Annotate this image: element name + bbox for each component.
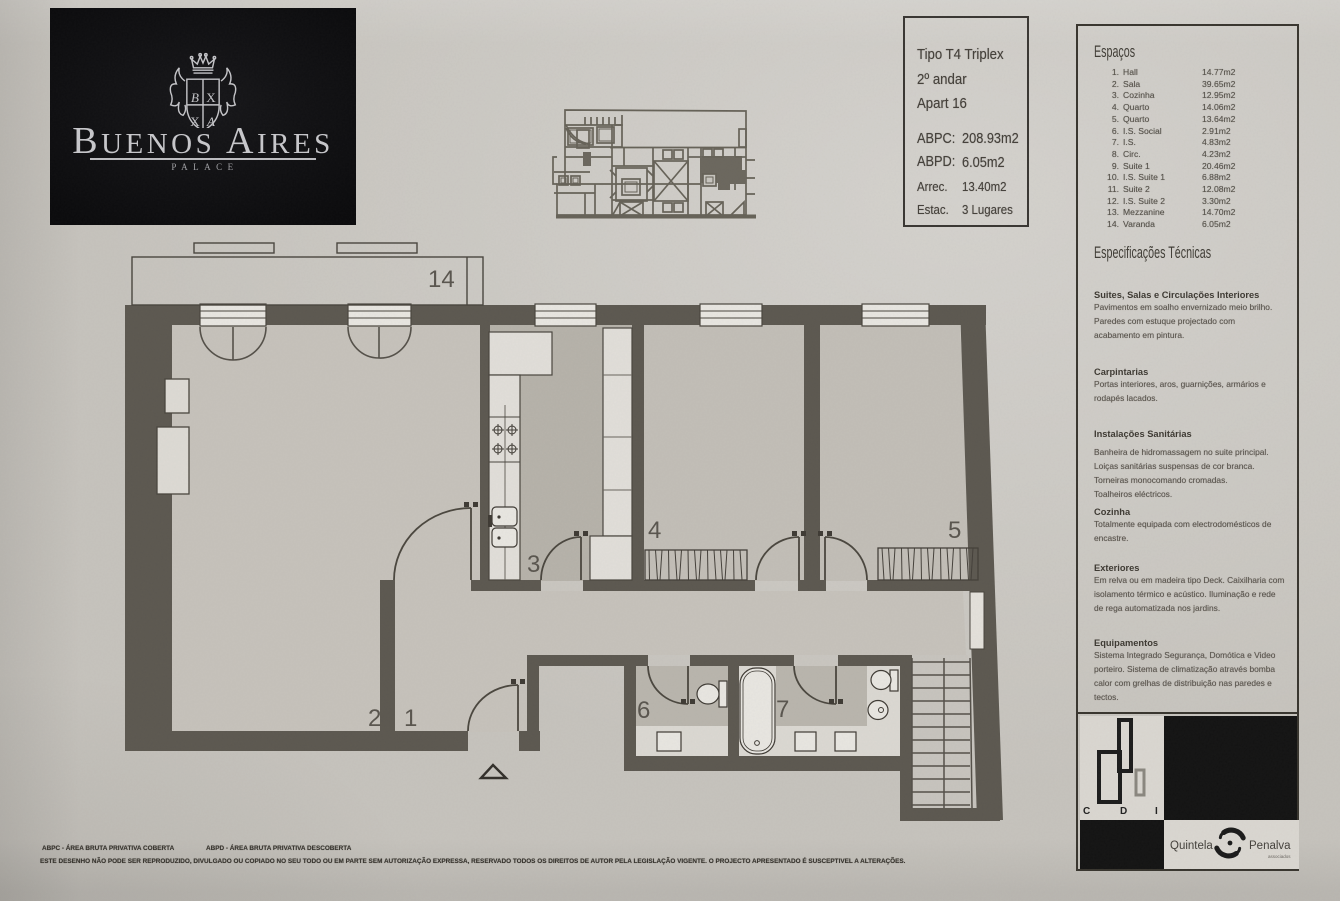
svg-text:7: 7	[776, 696, 789, 723]
svg-text:associados: associados	[1268, 854, 1291, 859]
svg-text:X: X	[206, 90, 216, 105]
svg-text:Quintela: Quintela	[1170, 840, 1213, 852]
svg-text:Penalva: Penalva	[1249, 840, 1291, 852]
svg-text:4: 4	[648, 517, 661, 544]
svg-text:6: 6	[637, 697, 650, 724]
svg-text:5: 5	[948, 517, 961, 544]
svg-text:A: A	[206, 114, 215, 128]
svg-text:X: X	[190, 114, 200, 128]
svg-text:D: D	[1120, 806, 1127, 817]
svg-text:14: 14	[428, 266, 455, 293]
svg-text:1: 1	[404, 705, 417, 732]
svg-text:B: B	[191, 90, 199, 105]
svg-text:3: 3	[527, 551, 540, 578]
svg-text:C: C	[1083, 806, 1090, 817]
svg-text:2: 2	[368, 705, 381, 732]
svg-text:I: I	[1155, 806, 1158, 817]
